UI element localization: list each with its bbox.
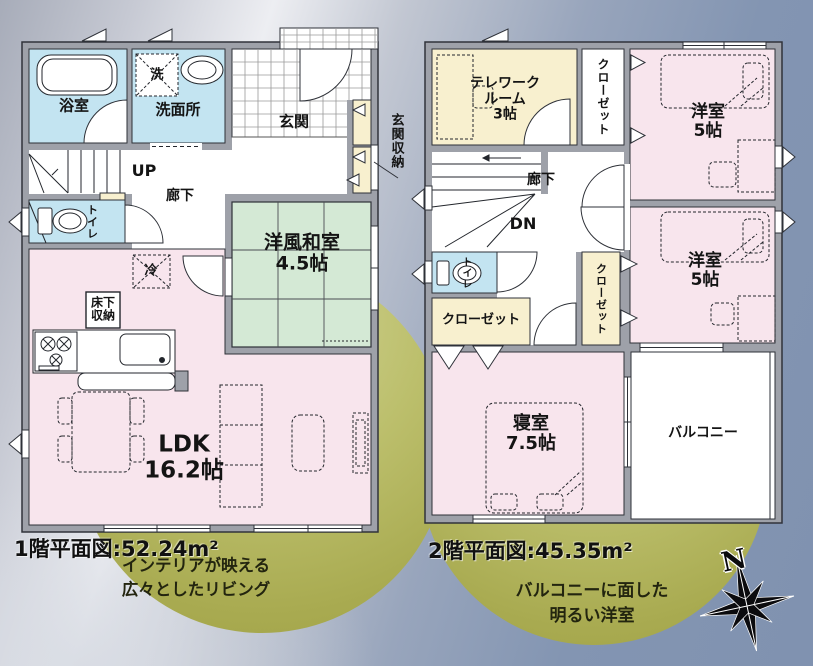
- room-label-hallway: 廊下: [166, 189, 194, 205]
- room-label-balcony: バルコニー: [668, 426, 738, 442]
- room-label-ldk: LDK 16.2帖: [144, 432, 224, 484]
- room-label-japanese-room: 洋風和室 4.5帖: [264, 233, 340, 276]
- callout-text-bedroom: バルコニーに面した 明るい洋室: [516, 576, 669, 626]
- vent-icon: [148, 29, 172, 41]
- room-label-main-bedroom: 寝室 7.5帖: [506, 414, 556, 454]
- sink-icon: [120, 334, 170, 365]
- vent-icon: [9, 212, 21, 232]
- vent-icon: [482, 29, 508, 41]
- vent-icon: [412, 189, 424, 209]
- room-label-hallway-2f: 廊下: [527, 173, 555, 189]
- caption-2f-area: 2階平面図:45.35m²: [428, 535, 633, 565]
- room-label-washer: 洗: [150, 69, 163, 84]
- floorplan-1f: 浴室 洗 洗面所 玄関 玄関収納 UP 廊下 トイレ 冷 床下 収納 洋風和室 …: [22, 42, 378, 532]
- room-label-underfloor-storage: 床下 収納: [91, 297, 115, 324]
- room-label-entrance-storage: 玄関収納: [390, 113, 403, 169]
- stairs-down-label: DN: [510, 215, 537, 233]
- vent-icon: [783, 212, 795, 232]
- floorplan-page: 浴室 洗 洗面所 玄関 玄関収納 UP 廊下 トイレ 冷 床下 収納 洋風和室 …: [0, 0, 813, 666]
- fridge-label: 冷: [144, 265, 157, 280]
- doorway: [624, 164, 630, 207]
- floorplan-2f: テレワーク ルーム 3帖 クローゼット 洋室 5帖 廊下 DN トイレ クローゼ…: [425, 42, 782, 523]
- toilet-icon: [437, 261, 481, 285]
- window: [371, 145, 378, 190]
- porch-tiles: [280, 28, 378, 49]
- room-label-washroom: 洗面所: [155, 102, 200, 119]
- vent-icon: [783, 147, 795, 167]
- vent-icon: [9, 434, 21, 454]
- room-label-telework: テレワーク ルーム 3帖: [470, 76, 540, 123]
- room-label-entrance: 玄関: [279, 114, 309, 131]
- room-label-toilet-2f: トイレ: [460, 257, 470, 290]
- room-label-bedroom5-top: 洋室 5帖: [691, 103, 725, 141]
- callout-text-living: インテリアが映える 広々としたリビング: [122, 552, 271, 600]
- entrance-step: [232, 137, 347, 151]
- room-label-bedroom5-bottom: 洋室 5帖: [688, 252, 722, 290]
- compass-rose-icon: [698, 540, 808, 665]
- bathtub-icon: [37, 55, 117, 95]
- room-label-bath: 浴室: [59, 98, 89, 115]
- shelf: [100, 193, 125, 200]
- vent-icon: [82, 29, 106, 41]
- room-label-closet-mid: クローゼット: [596, 263, 607, 335]
- room-label-closet-top: クローゼット: [597, 58, 609, 136]
- sliding-door: [225, 258, 232, 296]
- doorway: [624, 207, 630, 250]
- stairs-up-label: UP: [132, 162, 157, 180]
- vent-icon: [412, 264, 424, 284]
- wall-stub: [175, 371, 188, 391]
- room-label-toilet: トイレ: [87, 204, 98, 240]
- toilet-icon: [38, 208, 87, 234]
- sink-basin-icon: [181, 56, 223, 84]
- room-label-closet-left: クローゼット: [442, 314, 520, 329]
